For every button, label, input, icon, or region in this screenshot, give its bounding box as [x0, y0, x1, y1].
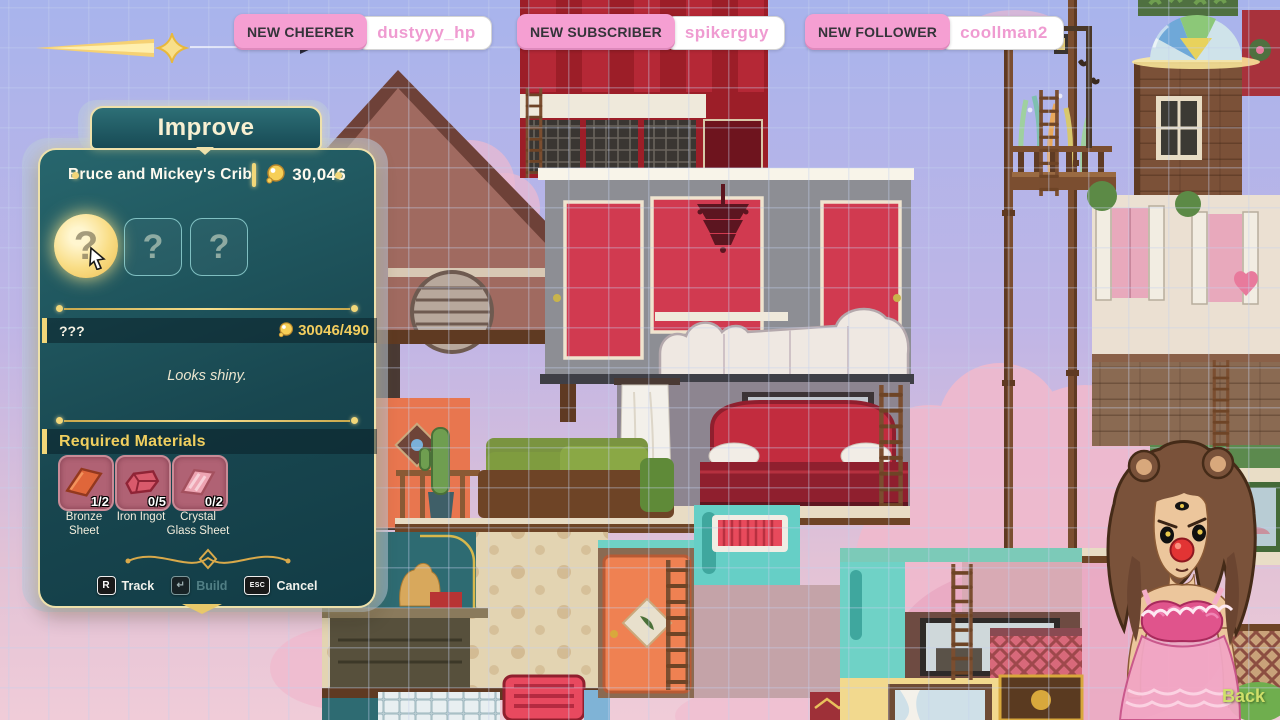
materials-header: Required Materials — [59, 433, 206, 451]
notification-follower: NEW FOLLOWER coollman2 — [805, 14, 1064, 50]
divider — [64, 308, 350, 310]
notification-username: coollman2 — [940, 16, 1064, 50]
key-r-icon: R — [97, 576, 116, 595]
upgrade-description: Looks shiny. — [40, 368, 374, 384]
action-bar: R Track ↵ Build ESC Cancel — [40, 576, 374, 595]
notification-type-badge: NEW CHEERER — [234, 14, 367, 50]
upgrade-slot-2[interactable]: ? — [124, 218, 182, 276]
filigree-ornament — [118, 545, 298, 575]
upgrade-slot-selected[interactable]: ? — [54, 214, 118, 278]
orange-door-room — [598, 540, 698, 698]
notification-username: dustyyy_hp — [357, 16, 491, 50]
progress-arrow — [34, 33, 204, 63]
panel-notch — [182, 604, 222, 614]
panel-header: Bruce and Mickey's Crib 30,046 — [54, 160, 360, 190]
game-screen: NEW CHEERER dustyyy_hp NEW SUBSCRIBER sp… — [0, 0, 1280, 720]
material-bronze-sheet[interactable]: 1/2 — [58, 455, 114, 511]
divider — [64, 420, 350, 422]
coin-icon — [264, 164, 286, 186]
notification-username: spikerguy — [665, 16, 785, 50]
upgrade-name: ??? — [59, 323, 85, 339]
materials-header-row: Required Materials — [42, 429, 377, 454]
notification-subscriber: NEW SUBSCRIBER spikerguy — [517, 14, 785, 50]
track-button[interactable]: R Track — [97, 576, 155, 595]
notification-type-badge: NEW FOLLOWER — [805, 14, 950, 50]
header-divider — [252, 163, 256, 187]
material-crystal-glass-sheet[interactable]: 0/2 — [172, 455, 228, 511]
cursor-pointer — [88, 246, 108, 270]
building-name: Bruce and Mickey's Crib — [68, 166, 252, 184]
shutter-room — [1087, 181, 1280, 446]
key-enter-icon: ↵ — [171, 576, 190, 595]
cancel-button[interactable]: ESC Cancel — [244, 576, 317, 595]
improve-panel: Bruce and Mickey's Crib 30,046 ? ? ? ??? — [38, 148, 376, 608]
improve-tab[interactable]: Improve — [90, 106, 322, 150]
build-button[interactable]: ↵ Build — [171, 576, 227, 595]
notification-type-badge: NEW SUBSCRIBER — [517, 14, 675, 50]
key-esc-icon: ESC — [244, 576, 270, 595]
tab-notch — [196, 147, 214, 155]
material-iron-ingot[interactable]: 0/5 — [115, 455, 171, 511]
coin-icon — [277, 322, 294, 339]
upgrade-slot-3[interactable]: ? — [190, 218, 248, 276]
upgrade-row[interactable]: ??? 30046/490 — [42, 318, 377, 343]
material-label: Crystal Glass Sheet — [165, 510, 231, 539]
upgrade-progress: 30046/490 — [277, 322, 369, 339]
back-button[interactable]: Back — [1222, 686, 1265, 707]
notification-cheer: NEW CHEERER dustyyy_hp — [234, 14, 492, 50]
